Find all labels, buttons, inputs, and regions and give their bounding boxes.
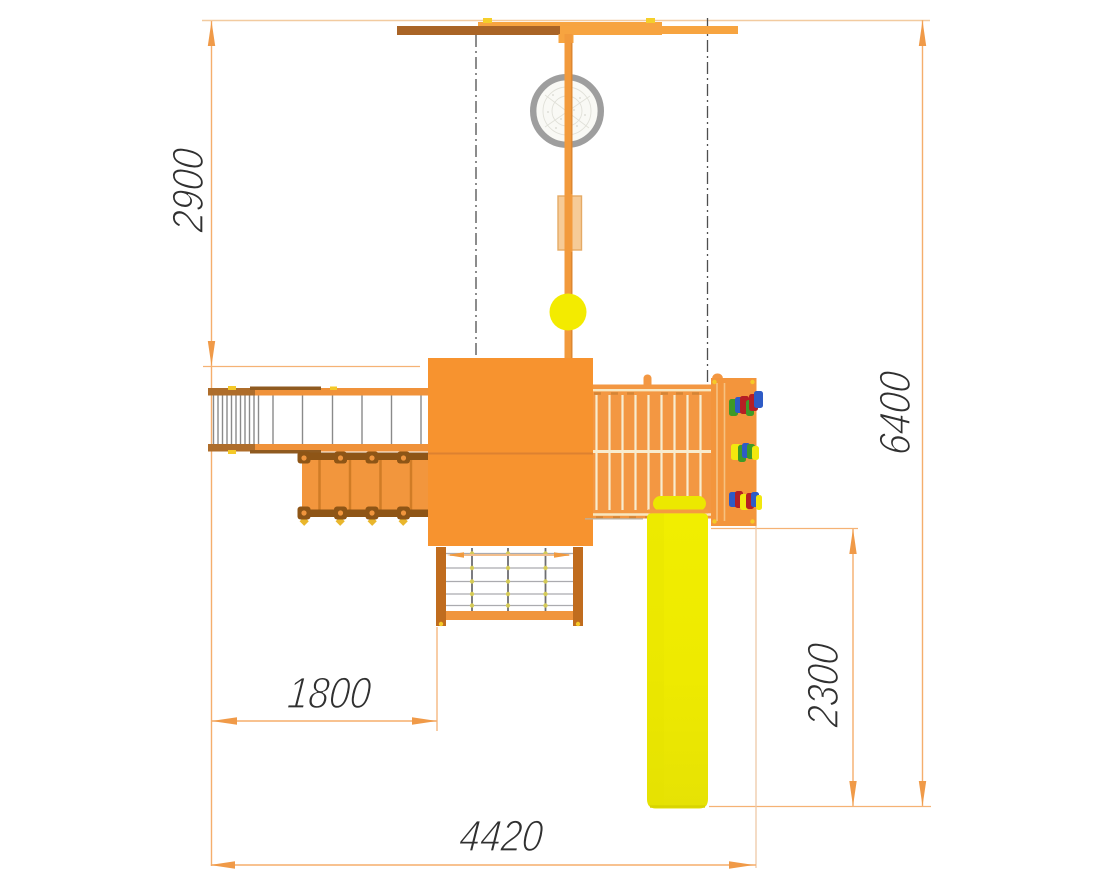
- svg-text:1800: 1800: [286, 668, 374, 717]
- svg-text:4420: 4420: [458, 811, 546, 860]
- svg-text:2300: 2300: [798, 641, 847, 730]
- svg-text:2900: 2900: [163, 146, 212, 235]
- svg-text:6400: 6400: [870, 369, 919, 457]
